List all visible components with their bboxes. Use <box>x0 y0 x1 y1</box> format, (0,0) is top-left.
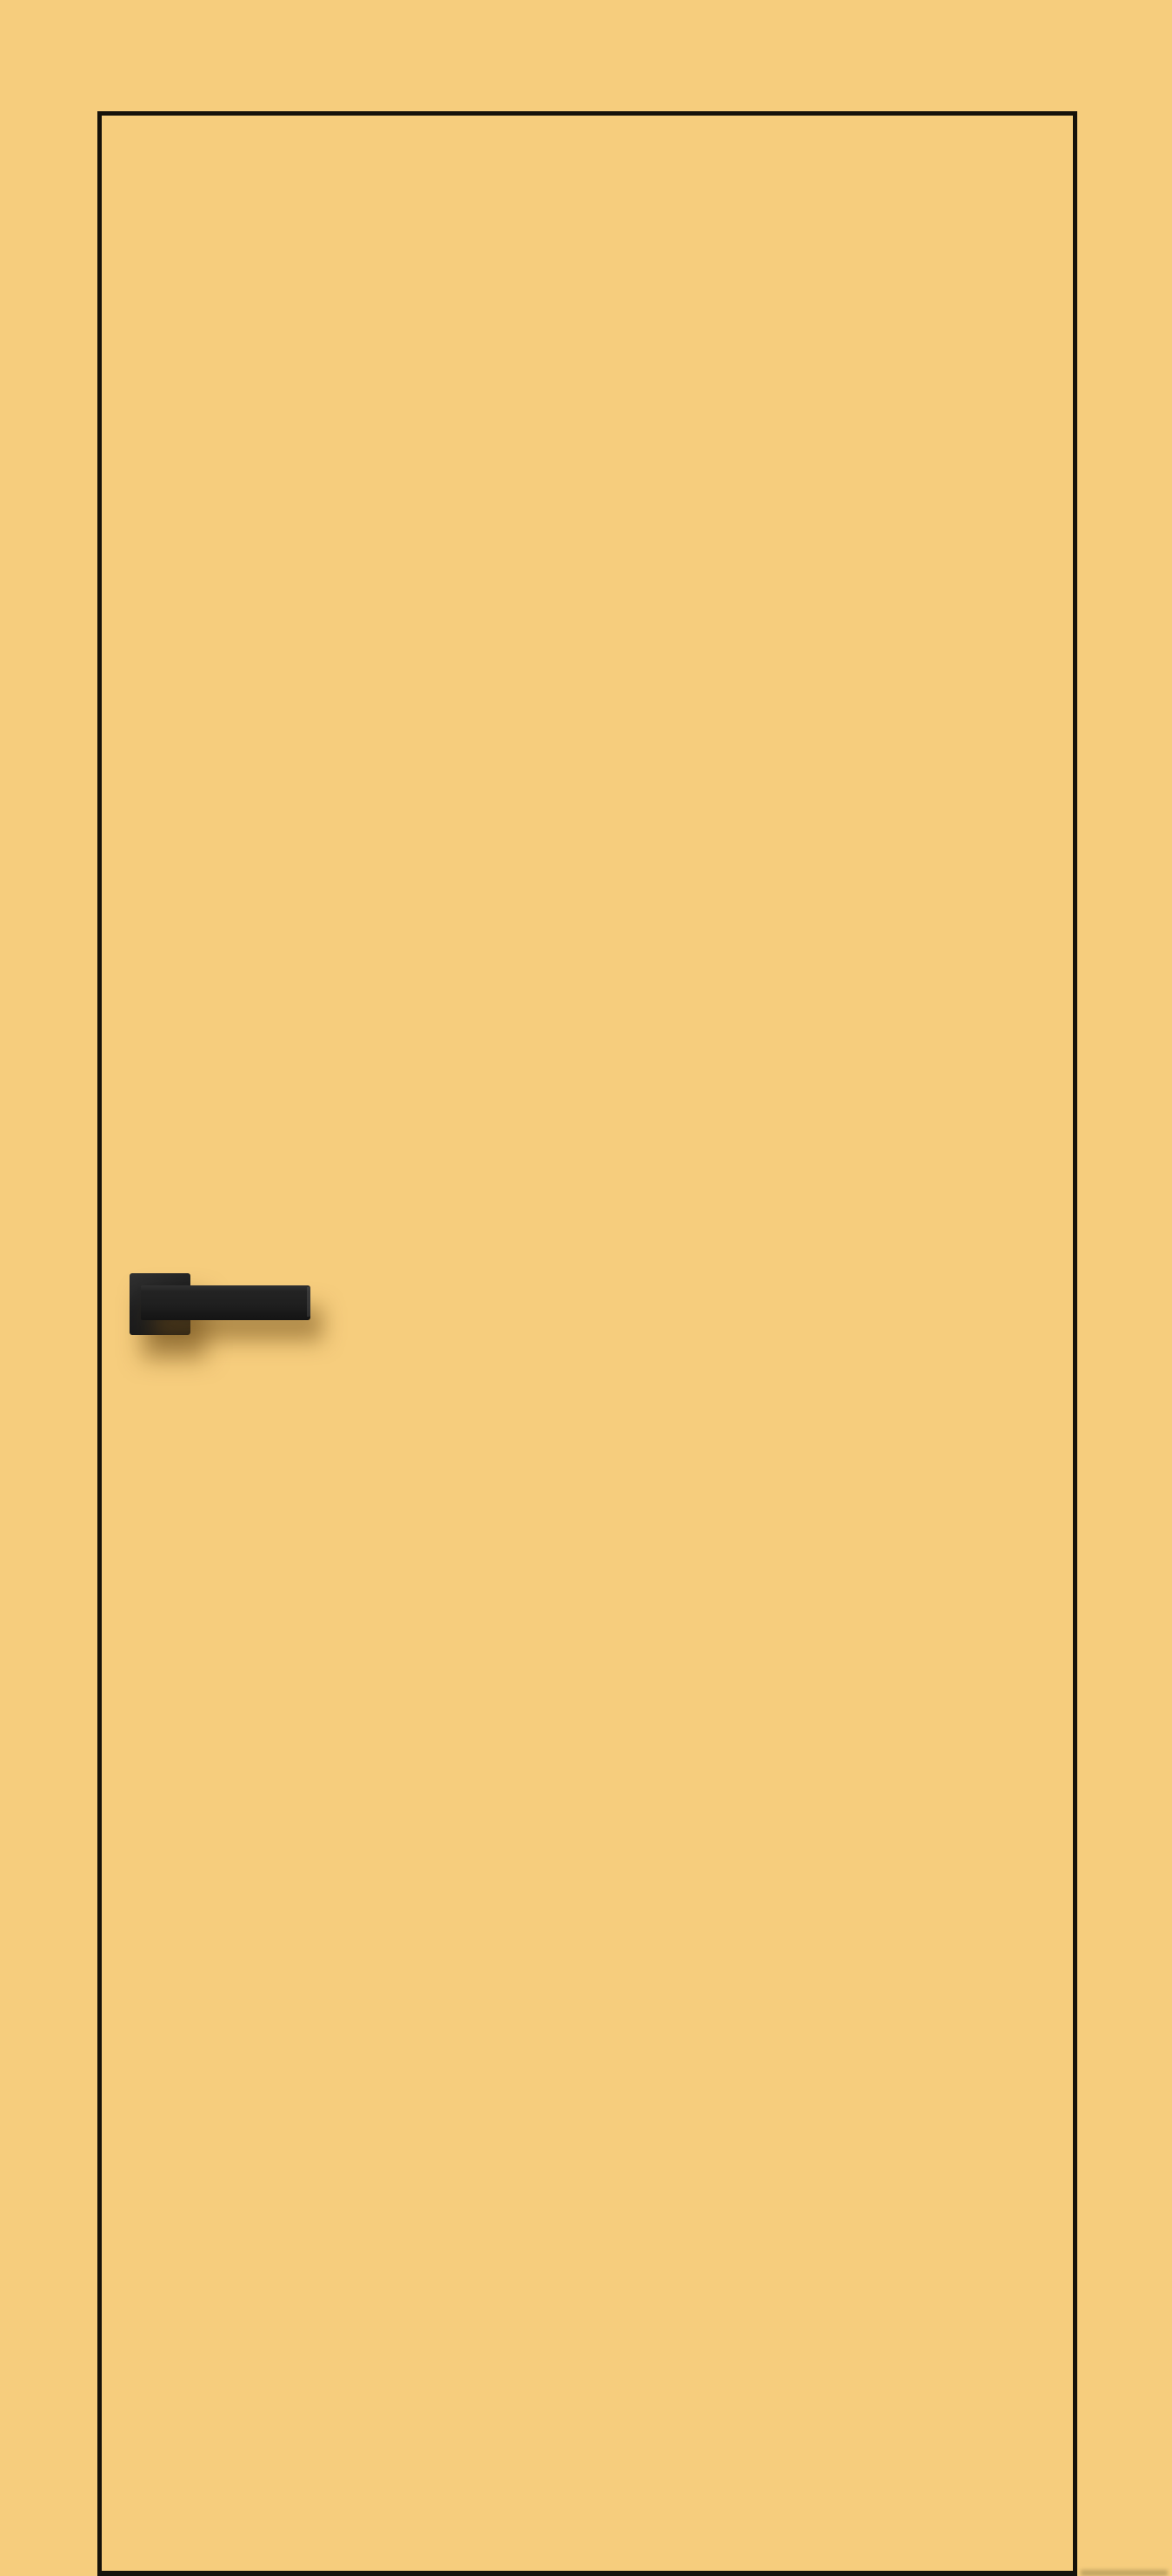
backdrop <box>0 0 1172 2576</box>
floor-shadow <box>1081 2570 1168 2576</box>
handle-lever <box>141 1285 310 1320</box>
door-leaf <box>97 111 1077 2576</box>
